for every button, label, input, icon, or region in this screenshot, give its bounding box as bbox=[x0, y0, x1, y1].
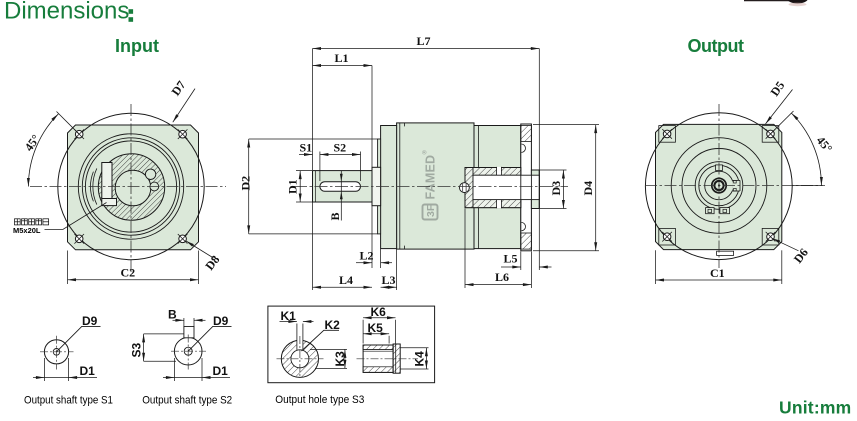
svg-text:L2: L2 bbox=[360, 249, 374, 263]
svg-text:B: B bbox=[168, 308, 177, 322]
svg-text:D1: D1 bbox=[213, 364, 229, 378]
svg-text:Output shaft type S2: Output shaft type S2 bbox=[142, 394, 232, 406]
svg-text:S3: S3 bbox=[129, 342, 143, 357]
svg-text:Output: Output bbox=[688, 36, 744, 56]
svg-text:C1: C1 bbox=[710, 266, 725, 280]
svg-text:K1: K1 bbox=[281, 309, 297, 323]
svg-text:K5: K5 bbox=[368, 321, 384, 335]
svg-text:Unit:mm: Unit:mm bbox=[779, 398, 851, 418]
svg-text:C2: C2 bbox=[121, 266, 136, 280]
svg-text:Dimensions: Dimensions bbox=[4, 0, 129, 25]
svg-text:B: B bbox=[328, 212, 342, 220]
svg-text:D9: D9 bbox=[213, 314, 229, 328]
svg-text:Output shaft type S1: Output shaft type S1 bbox=[24, 394, 113, 406]
svg-text:K6: K6 bbox=[371, 305, 387, 319]
svg-text:®: ® bbox=[422, 149, 429, 154]
svg-text:D1: D1 bbox=[80, 364, 96, 378]
svg-text:K2: K2 bbox=[325, 318, 341, 332]
svg-text:D1: D1 bbox=[286, 179, 300, 194]
svg-text:L3: L3 bbox=[382, 273, 396, 287]
svg-text:D9: D9 bbox=[82, 314, 98, 328]
svg-text:L4: L4 bbox=[339, 273, 353, 287]
svg-text:S2: S2 bbox=[334, 141, 347, 155]
svg-text:L7: L7 bbox=[417, 34, 431, 48]
svg-text:L1: L1 bbox=[335, 51, 349, 65]
svg-text:K3: K3 bbox=[333, 351, 347, 367]
svg-text:Output hole type S3: Output hole type S3 bbox=[275, 394, 364, 406]
svg-text:S1: S1 bbox=[300, 141, 313, 155]
svg-text:L6: L6 bbox=[495, 270, 509, 284]
svg-text:FAMED: FAMED bbox=[424, 155, 438, 200]
svg-text:D4: D4 bbox=[581, 181, 595, 196]
svg-text:3F: 3F bbox=[425, 204, 437, 217]
svg-text:L5: L5 bbox=[504, 252, 518, 266]
svg-text:D2: D2 bbox=[239, 176, 253, 191]
svg-text:D3: D3 bbox=[549, 181, 563, 196]
svg-text:Input: Input bbox=[115, 36, 159, 56]
svg-text:K4: K4 bbox=[413, 351, 427, 367]
svg-text:M5x20L: M5x20L bbox=[13, 226, 41, 235]
